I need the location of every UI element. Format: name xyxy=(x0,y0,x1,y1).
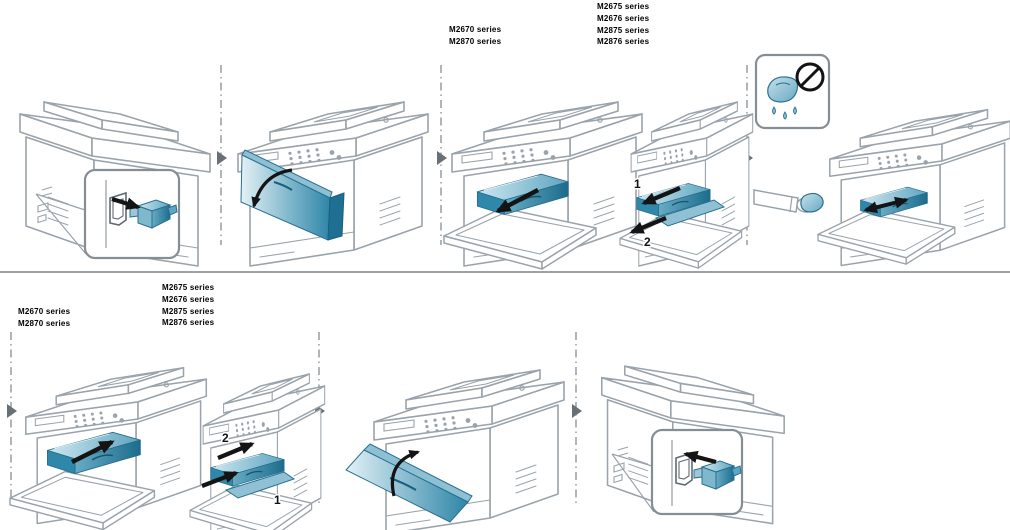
model-series-line: M2670 series xyxy=(18,306,70,318)
hand-with-cloth xyxy=(754,190,823,212)
toner-replacement-diagram: M2670 series M2870 series M2675 series M… xyxy=(0,0,1010,530)
model-series-line: M2676 series xyxy=(597,13,649,25)
model-series-line: M2870 series xyxy=(18,318,70,330)
step-number: 1 xyxy=(634,177,641,191)
model-series-line: M2875 series xyxy=(597,25,649,37)
shake-and-pull-out-cartridge-illustration: 1 2 xyxy=(626,56,750,270)
model-series-line: M2676 series xyxy=(162,294,214,306)
row-divider-line xyxy=(0,271,1010,273)
no-wet-cloth-prohibition-callout xyxy=(756,55,829,128)
power-plug-callout xyxy=(85,170,179,258)
model-series-label-bottom-left: M2670 series M2870 series xyxy=(18,306,70,330)
model-series-line: M2876 series xyxy=(162,317,214,329)
model-series-line: M2670 series xyxy=(449,24,501,36)
plug-in-power-cord-illustration xyxy=(588,326,792,528)
step-number: 2 xyxy=(644,235,651,249)
model-series-line: M2876 series xyxy=(597,36,649,48)
unplug-power-cord-illustration xyxy=(8,56,220,268)
model-series-line: M2675 series xyxy=(597,1,649,13)
model-series-line: M2870 series xyxy=(449,36,501,48)
close-front-cover-illustration xyxy=(330,320,574,530)
model-series-line: M2875 series xyxy=(162,306,214,318)
model-series-label-top-right: M2675 series M2676 series M2875 series M… xyxy=(597,1,649,48)
open-front-cover-illustration xyxy=(228,54,434,270)
model-series-label-top-left: M2670 series M2870 series xyxy=(449,24,501,48)
step-number: 2 xyxy=(222,431,229,445)
insert-cartridge-two-steps-illustration: 2 1 xyxy=(198,332,320,530)
step-number: 1 xyxy=(274,493,281,507)
pull-out-toner-cartridge-illustration xyxy=(446,56,642,270)
power-plug-callout xyxy=(652,430,742,514)
model-series-label-bottom-right: M2675 series M2676 series M2875 series M… xyxy=(162,282,214,329)
power-socket-icon xyxy=(676,453,692,485)
wipe-inside-printer-illustration xyxy=(754,52,1010,270)
model-series-line: M2675 series xyxy=(162,282,214,294)
insert-toner-cartridge-illustration xyxy=(14,332,206,530)
wet-cloth-icon xyxy=(768,77,798,102)
